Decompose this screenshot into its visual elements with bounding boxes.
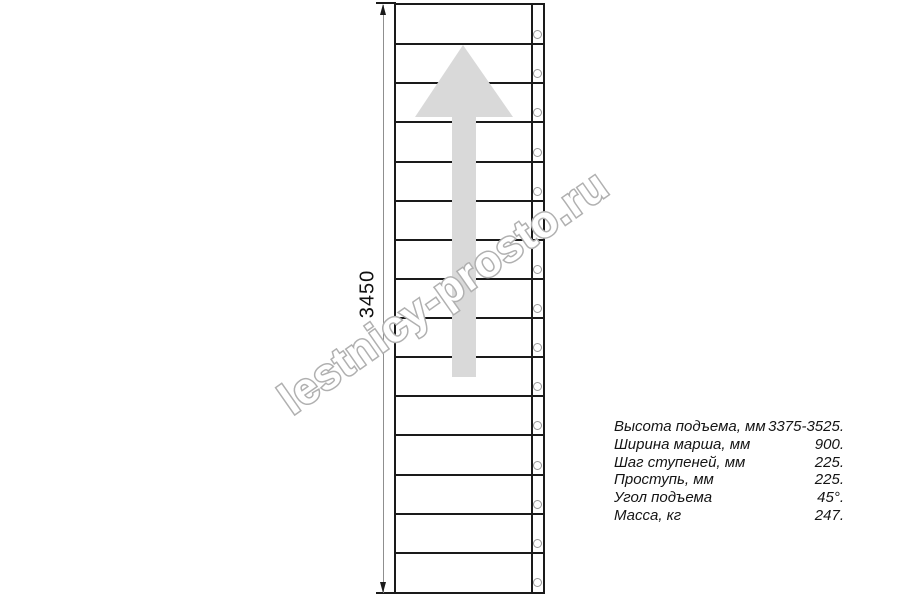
step-edge-line	[396, 121, 543, 123]
drawing-canvas: 3450 lestnicy-prosto.ru Высота подъема, …	[0, 0, 900, 600]
bolt-circle-icon	[533, 500, 542, 509]
step-edge-line	[396, 200, 543, 202]
spec-value: 3375-3525.	[768, 418, 844, 436]
bolt-circle-icon	[533, 421, 542, 430]
spec-label: Масса, кг	[614, 507, 681, 525]
spec-row-step-pitch: Шаг ступеней, мм 225.	[614, 454, 844, 472]
spec-row-mass: Масса, кг 247.	[614, 507, 844, 525]
spec-label: Угол подъема	[614, 489, 712, 507]
bolt-circle-icon	[533, 265, 542, 274]
bolt-circle-icon	[533, 148, 542, 157]
bolt-circle-icon	[533, 578, 542, 587]
spec-row-rise-height: Высота подъема, мм 3375-3525.	[614, 418, 844, 436]
dimension-value: 3450	[357, 270, 380, 319]
spec-label: Шаг ступеней, мм	[614, 454, 745, 472]
step-edge-line	[396, 239, 543, 241]
spec-value: 225.	[815, 471, 844, 489]
spec-table: Высота подъема, мм 3375-3525. Ширина мар…	[614, 418, 844, 525]
step-edge-line	[396, 43, 543, 45]
dimension-arrow-down-icon	[380, 582, 386, 593]
stair-flight	[394, 3, 545, 594]
dimension-line	[383, 5, 384, 593]
bolt-circle-icon	[533, 30, 542, 39]
bolt-circle-icon	[533, 343, 542, 352]
step-edge-line	[396, 317, 543, 319]
step-edge-line	[396, 82, 543, 84]
spec-value: 45°.	[817, 489, 844, 507]
spec-row-angle: Угол подъема 45°.	[614, 489, 844, 507]
bolt-circle-icon	[533, 69, 542, 78]
spec-value: 225.	[815, 454, 844, 472]
bolt-circle-icon	[533, 304, 542, 313]
step-edge-line	[396, 513, 543, 515]
dimension-arrow-up-icon	[380, 4, 386, 15]
spec-value: 900.	[815, 436, 844, 454]
step-edge-line	[396, 356, 543, 358]
step-edge-line	[396, 434, 543, 436]
step-edge-line	[396, 474, 543, 476]
bolt-circle-icon	[533, 226, 542, 235]
bolt-circle-icon	[533, 382, 542, 391]
spec-value: 247.	[815, 507, 844, 525]
spec-row-tread: Проступь, мм 225.	[614, 471, 844, 489]
extension-line-top	[376, 2, 396, 4]
step-edge-line	[396, 278, 543, 280]
spec-row-flight-width: Ширина марша, мм 900.	[614, 436, 844, 454]
spec-label: Ширина марша, мм	[614, 436, 750, 454]
step-edge-line	[396, 161, 543, 163]
bolt-circle-icon	[533, 461, 542, 470]
spec-label: Проступь, мм	[614, 471, 714, 489]
bolt-circle-icon	[533, 187, 542, 196]
step-edge-line	[396, 395, 543, 397]
spec-label: Высота подъема, мм	[614, 418, 766, 436]
bolt-circle-icon	[533, 539, 542, 548]
step-edge-line	[396, 552, 543, 554]
extension-line-bottom	[376, 592, 396, 594]
bolt-circle-icon	[533, 108, 542, 117]
